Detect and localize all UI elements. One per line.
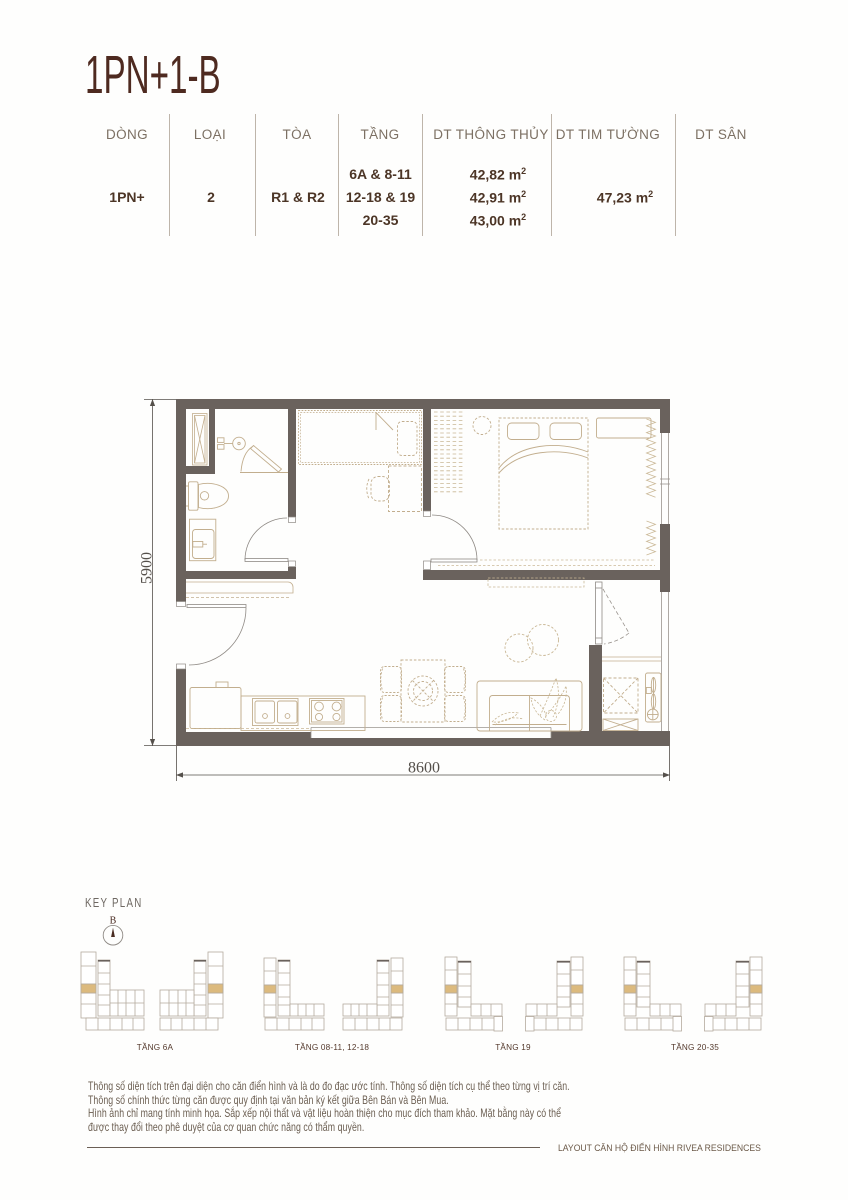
- svg-text:8600: 8600: [408, 760, 440, 777]
- svg-text:5900: 5900: [139, 552, 156, 584]
- svg-text:B: B: [110, 916, 117, 927]
